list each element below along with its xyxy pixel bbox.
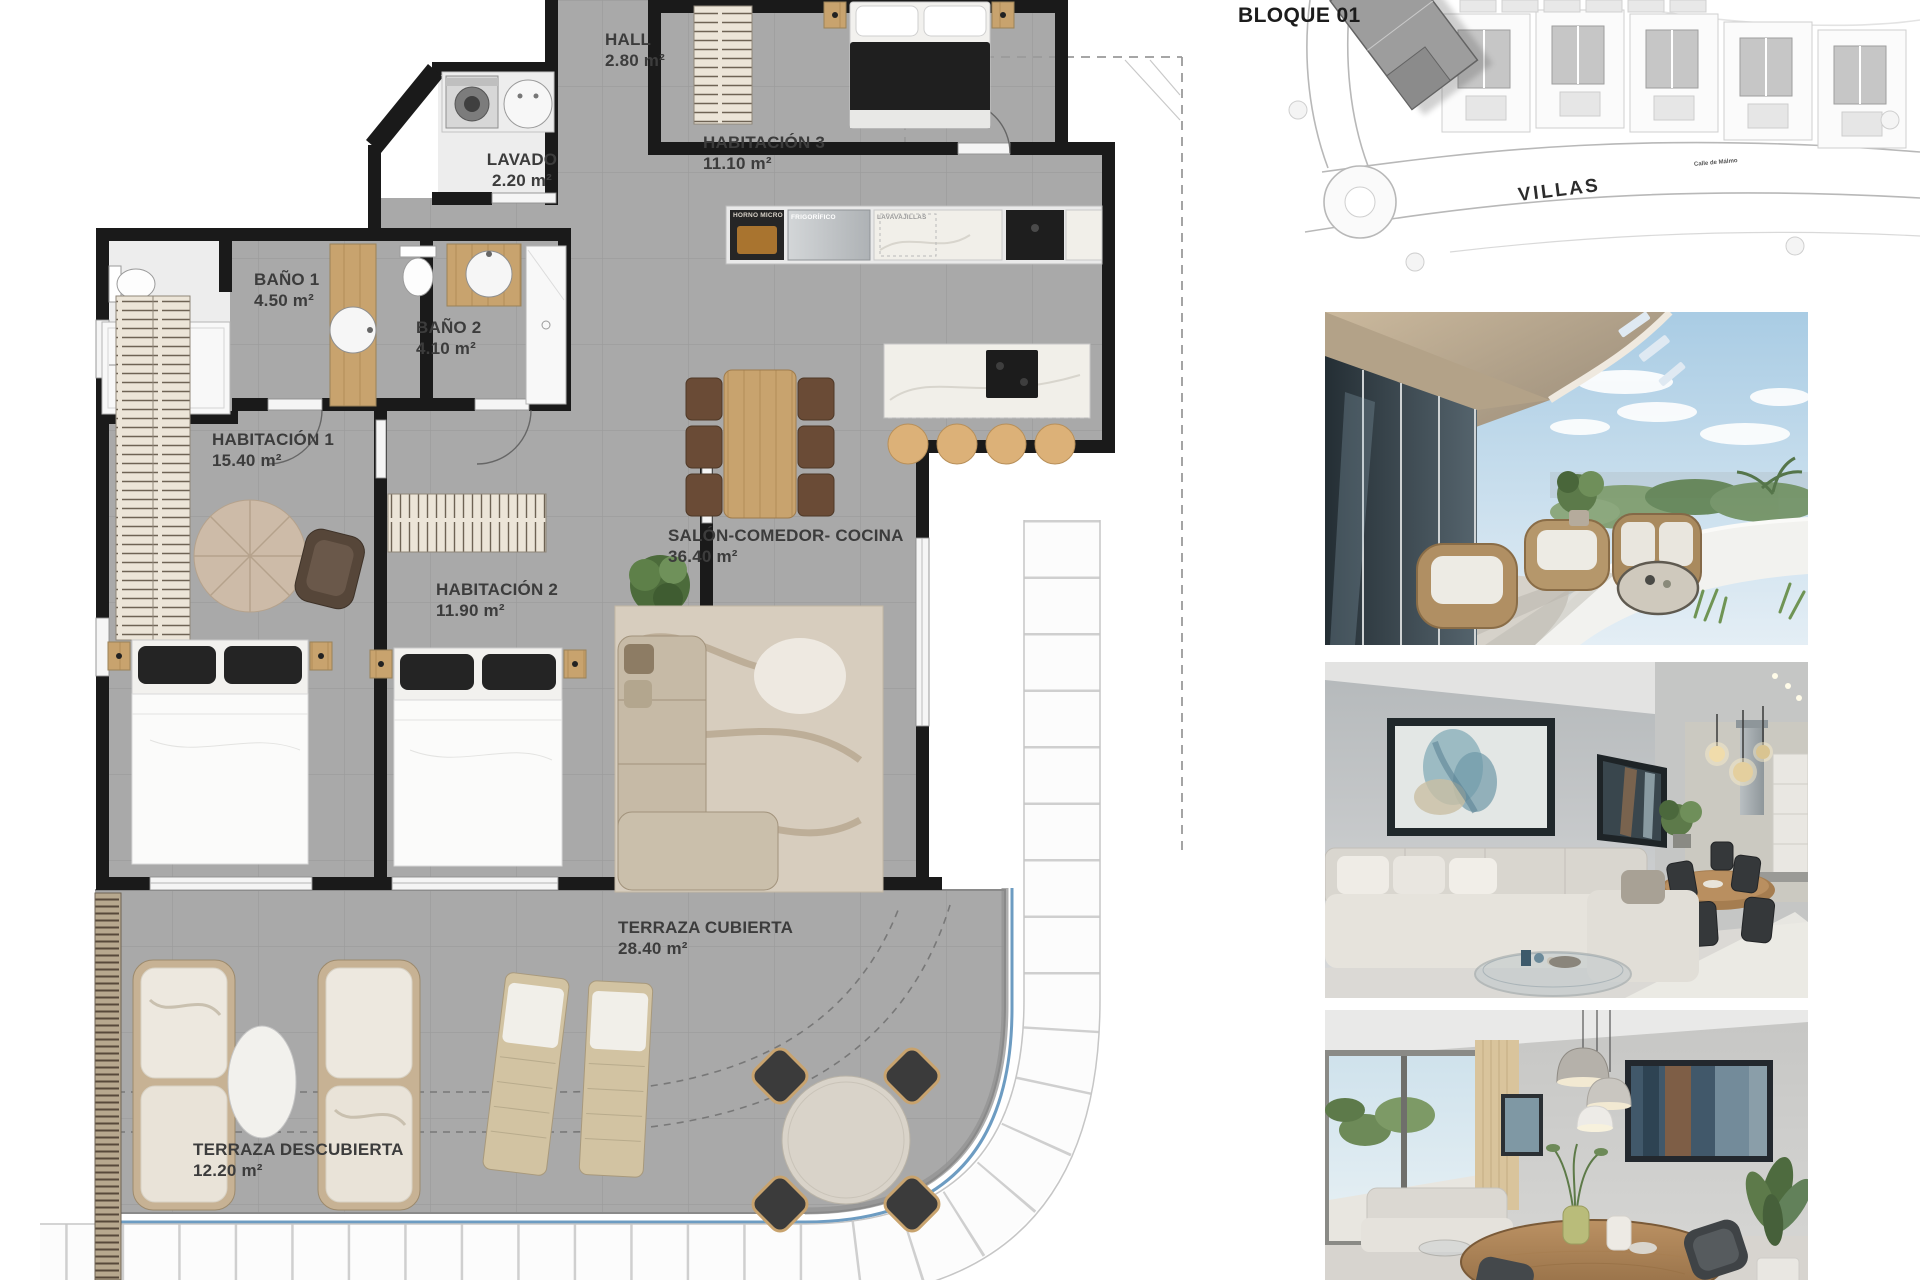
laundry-fixtures xyxy=(442,72,554,132)
appliance-label-horno-micro: HORNO MICRO xyxy=(733,212,785,219)
room-name: TERRAZA CUBIERTA xyxy=(618,918,793,939)
site-plan-drawing xyxy=(1210,0,1920,312)
floor-plan-drawing xyxy=(0,0,1210,1280)
room-label-habitacion-2: HABITACIÓN 2 11.90 m² xyxy=(436,580,558,621)
photo-living-room-render xyxy=(1325,662,1808,998)
large-wall-art xyxy=(1625,1060,1773,1162)
room-name: TERRAZA DESCUBIERTA xyxy=(193,1140,404,1161)
room-label-habitacion-1: HABITACIÓN 1 15.40 m² xyxy=(212,430,334,471)
villa-plots xyxy=(1442,0,1906,148)
small-wall-art xyxy=(1501,1094,1543,1156)
roundabout-center xyxy=(1345,187,1375,217)
room-name: BAÑO 2 xyxy=(416,318,481,339)
room-name: LAVADO xyxy=(462,150,582,171)
room-label-terraza-descubierta: TERRAZA DESCUBIERTA 12.20 m² xyxy=(193,1140,404,1181)
room-area: 36.40 m² xyxy=(668,547,904,568)
page-canvas: HALL 2.80 m² LAVADO 2.20 m² HABITACIÓN 3… xyxy=(0,0,1920,1280)
room-name: BAÑO 1 xyxy=(254,270,319,291)
room-name: HABITACIÓN 2 xyxy=(436,580,558,601)
kitchen-island xyxy=(884,344,1090,464)
room-name: HALL xyxy=(605,30,665,51)
room-label-hall: HALL 2.80 m² xyxy=(605,30,665,71)
room-area: 15.40 m² xyxy=(212,451,334,472)
room-area: 28.40 m² xyxy=(618,939,793,960)
room-name: HABITACIÓN 1 xyxy=(212,430,334,451)
room-label-terra-cubierta: TERRAZA CUBIERTA 28.40 m² xyxy=(618,918,793,959)
bloque-01-label: BLOQUE 01 xyxy=(1238,4,1361,28)
room-label-salon-comedor-cocina: SALÓN-COMEDOR- COCINA 36.40 m² xyxy=(668,526,904,567)
room-area: 2.80 m² xyxy=(605,51,665,72)
bedroom-3-furniture xyxy=(694,2,1014,128)
room-label-bano-2: BAÑO 2 4.10 m² xyxy=(416,318,481,359)
room-label-lavado: LAVADO 2.20 m² xyxy=(462,150,582,191)
room-name: HABITACIÓN 3 xyxy=(703,133,825,154)
side-table xyxy=(1618,562,1698,614)
room-label-bano-1: BAÑO 1 4.50 m² xyxy=(254,270,319,311)
wall-art-small xyxy=(1597,754,1667,848)
site-plan: BLOQUE 01 VILLAS Calle de Málmo xyxy=(1210,0,1920,312)
appliance-label-lavavajillas: LAVAVAJILLAS xyxy=(877,214,929,221)
room-label-habitacion-3: HABITACIÓN 3 11.10 m² xyxy=(703,133,825,174)
photo-terrace-render xyxy=(1325,312,1808,645)
room-area: 11.90 m² xyxy=(436,601,558,622)
room-area: 2.20 m² xyxy=(462,171,582,192)
room-area: 4.50 m² xyxy=(254,291,319,312)
dining-set xyxy=(686,370,834,518)
room-area: 12.20 m² xyxy=(193,1161,404,1182)
photo-dining-room-render xyxy=(1325,1010,1808,1280)
room-name: SALÓN-COMEDOR- COCINA xyxy=(668,526,904,547)
room-area: 4.10 m² xyxy=(416,339,481,360)
wall-art-large xyxy=(1387,718,1555,836)
room-area: 11.10 m² xyxy=(703,154,825,175)
appliance-label-frigorifico: FRIGORÍFICO xyxy=(791,214,843,221)
